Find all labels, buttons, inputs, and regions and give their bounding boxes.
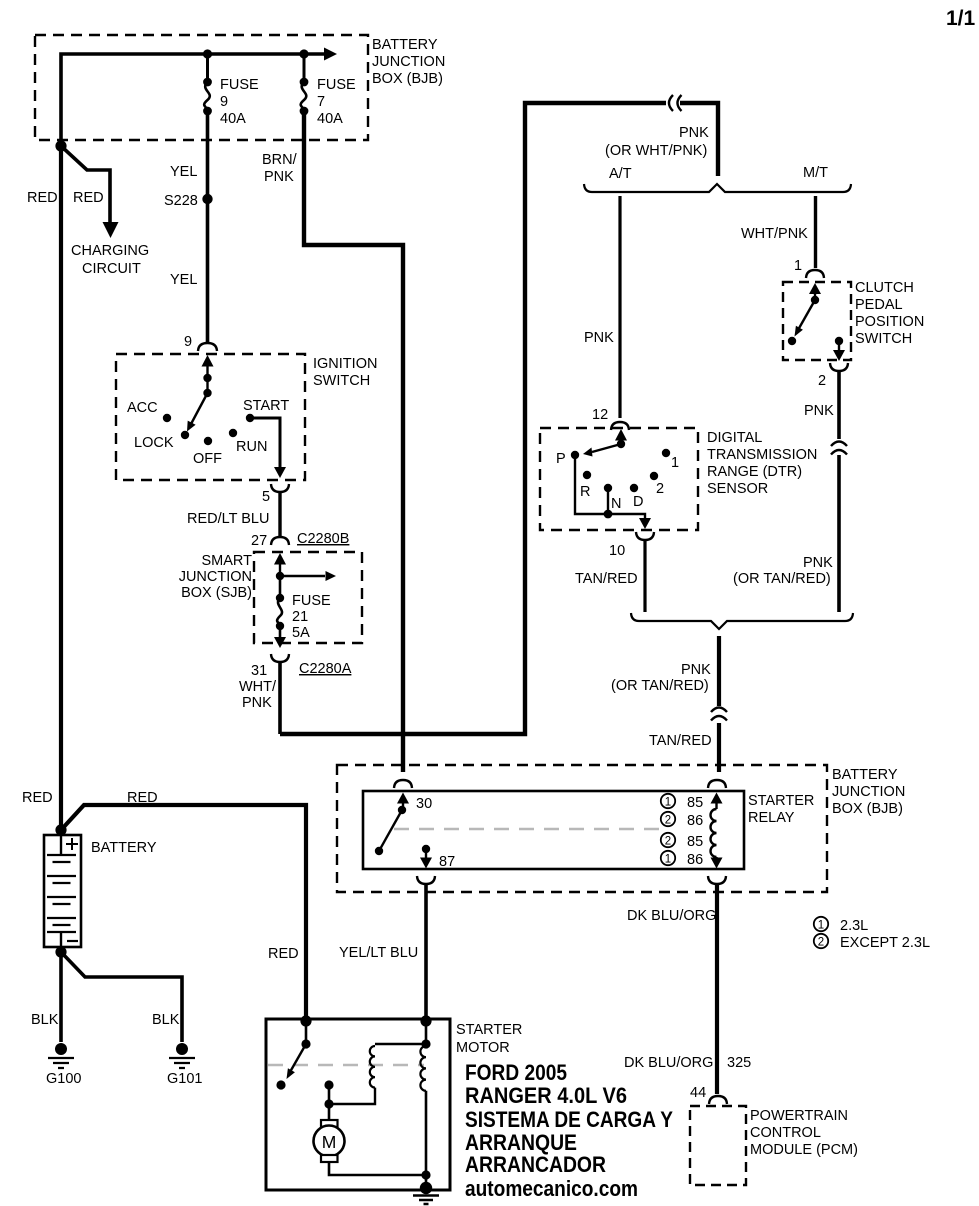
svg-text:86: 86: [687, 852, 703, 868]
svg-text:SWITCH: SWITCH: [313, 373, 370, 389]
svg-text:POWERTRAIN: POWERTRAIN: [750, 1108, 848, 1124]
svg-text:YEL: YEL: [170, 272, 197, 288]
svg-text:PNK: PNK: [242, 695, 272, 711]
svg-text:WHT/PNK: WHT/PNK: [741, 226, 808, 242]
svg-text:40A: 40A: [220, 111, 246, 127]
svg-text:R: R: [580, 484, 590, 500]
svg-text:YEL/LT BLU: YEL/LT BLU: [339, 945, 418, 961]
svg-text:SISTEMA DE CARGA Y: SISTEMA DE CARGA Y: [465, 1107, 673, 1132]
svg-text:RELAY: RELAY: [748, 810, 795, 826]
svg-text:BATTERY: BATTERY: [832, 767, 898, 783]
svg-text:CLUTCH: CLUTCH: [855, 280, 914, 296]
svg-text:PNK: PNK: [803, 555, 833, 571]
svg-text:PEDAL: PEDAL: [855, 297, 903, 313]
svg-text:1: 1: [794, 258, 802, 274]
svg-text:JUNCTION: JUNCTION: [372, 54, 445, 70]
svg-text:40A: 40A: [317, 111, 343, 127]
svg-text:12: 12: [592, 407, 608, 423]
svg-text:TAN/RED: TAN/RED: [575, 571, 638, 587]
svg-text:TRANSMISSION: TRANSMISSION: [707, 447, 817, 463]
svg-text:BATTERY: BATTERY: [372, 37, 438, 53]
svg-text:SENSOR: SENSOR: [707, 481, 768, 497]
svg-text:30: 30: [416, 796, 432, 812]
svg-text:MOTOR: MOTOR: [456, 1040, 510, 1056]
svg-text:2: 2: [818, 373, 826, 389]
svg-text:JUNCTION: JUNCTION: [179, 569, 252, 585]
svg-text:LOCK: LOCK: [134, 435, 174, 451]
svg-text:CONTROL: CONTROL: [750, 1125, 821, 1141]
svg-text:RUN: RUN: [236, 439, 267, 455]
svg-text:STARTER: STARTER: [748, 793, 814, 809]
svg-text:BLK: BLK: [31, 1012, 59, 1028]
svg-text:A/T: A/T: [609, 166, 632, 182]
svg-text:STARTER: STARTER: [456, 1022, 522, 1038]
svg-text:RED: RED: [268, 946, 299, 962]
svg-text:JUNCTION: JUNCTION: [832, 784, 905, 800]
svg-text:M/T: M/T: [803, 165, 828, 181]
svg-text:9: 9: [184, 334, 192, 350]
svg-text:86: 86: [687, 813, 703, 829]
svg-text:1: 1: [818, 920, 824, 932]
svg-text:(OR TAN/RED): (OR TAN/RED): [733, 571, 831, 587]
svg-text:BRN/: BRN/: [262, 152, 298, 168]
svg-text:(OR WHT/PNK): (OR WHT/PNK): [605, 143, 707, 159]
svg-text:PNK: PNK: [264, 169, 294, 185]
svg-text:2: 2: [818, 937, 824, 949]
svg-text:5: 5: [262, 489, 270, 505]
svg-text:CIRCUIT: CIRCUIT: [82, 261, 141, 277]
svg-text:1: 1: [671, 455, 679, 471]
svg-text:FUSE: FUSE: [220, 77, 259, 93]
svg-text:2: 2: [656, 481, 664, 497]
svg-text:27: 27: [251, 533, 267, 549]
svg-text:9: 9: [220, 94, 228, 110]
svg-text:N: N: [611, 496, 621, 512]
svg-text:PNK: PNK: [681, 662, 711, 678]
svg-text:EXCEPT 2.3L: EXCEPT 2.3L: [840, 935, 930, 951]
svg-text:CHARGING: CHARGING: [71, 243, 149, 259]
svg-text:RED/LT BLU: RED/LT BLU: [187, 511, 269, 527]
svg-text:G101: G101: [167, 1071, 202, 1087]
svg-text:DK BLU/ORG: DK BLU/ORG: [627, 908, 716, 924]
svg-text:M: M: [322, 1132, 337, 1152]
svg-text:FUSE: FUSE: [292, 593, 331, 609]
svg-text:SWITCH: SWITCH: [855, 331, 912, 347]
svg-text:BLK: BLK: [152, 1012, 180, 1028]
svg-text:31: 31: [251, 663, 267, 679]
svg-text:BOX (BJB): BOX (BJB): [372, 71, 443, 87]
svg-text:G100: G100: [46, 1071, 81, 1087]
svg-text:RED: RED: [27, 190, 58, 206]
svg-text:IGNITION: IGNITION: [313, 356, 377, 372]
svg-text:2: 2: [665, 815, 671, 827]
svg-text:TAN/RED: TAN/RED: [649, 733, 712, 749]
svg-text:D: D: [633, 494, 643, 510]
svg-text:POSITION: POSITION: [855, 314, 924, 330]
svg-text:SMART: SMART: [202, 553, 253, 569]
svg-text:BOX (SJB): BOX (SJB): [181, 585, 252, 601]
svg-text:PNK: PNK: [804, 403, 834, 419]
svg-text:MODULE (PCM): MODULE (PCM): [750, 1142, 858, 1158]
svg-text:YEL: YEL: [170, 164, 197, 180]
svg-text:RED: RED: [22, 790, 53, 806]
svg-text:1/1: 1/1: [946, 7, 976, 30]
svg-text:325: 325: [727, 1055, 751, 1071]
svg-text:85: 85: [687, 834, 703, 850]
svg-text:S228: S228: [164, 193, 198, 209]
svg-text:10: 10: [609, 543, 625, 559]
svg-text:P: P: [556, 451, 566, 467]
svg-text:C2280B: C2280B: [297, 531, 349, 547]
svg-text:ARRANCADOR: ARRANCADOR: [465, 1152, 606, 1177]
svg-text:C2280A: C2280A: [299, 661, 352, 677]
svg-text:RANGE (DTR): RANGE (DTR): [707, 464, 802, 480]
svg-text:44: 44: [690, 1085, 706, 1101]
svg-text:(OR TAN/RED): (OR TAN/RED): [611, 678, 709, 694]
svg-text:2: 2: [665, 836, 671, 848]
svg-text:ACC: ACC: [127, 400, 158, 416]
svg-text:FUSE: FUSE: [317, 77, 356, 93]
svg-text:START: START: [243, 398, 289, 414]
svg-text:OFF: OFF: [193, 451, 222, 467]
svg-text:5A: 5A: [292, 625, 310, 641]
svg-text:2.3L: 2.3L: [840, 918, 868, 934]
svg-text:RANGER 4.0L V6: RANGER 4.0L V6: [465, 1083, 627, 1108]
svg-text:1: 1: [665, 797, 671, 809]
svg-text:7: 7: [317, 94, 325, 110]
svg-text:automecanico.com: automecanico.com: [465, 1176, 638, 1201]
svg-text:PNK: PNK: [679, 125, 709, 141]
svg-text:21: 21: [292, 609, 308, 625]
svg-text:1: 1: [665, 854, 671, 866]
svg-text:PNK: PNK: [584, 330, 614, 346]
svg-text:85: 85: [687, 795, 703, 811]
svg-text:BATTERY: BATTERY: [91, 840, 157, 856]
svg-text:87: 87: [439, 854, 455, 870]
svg-text:DIGITAL: DIGITAL: [707, 430, 762, 446]
svg-text:FORD 2005: FORD 2005: [465, 1060, 567, 1085]
svg-text:RED: RED: [73, 190, 104, 206]
svg-text:BOX (BJB): BOX (BJB): [832, 801, 903, 817]
svg-text:DK BLU/ORG: DK BLU/ORG: [624, 1055, 713, 1071]
svg-text:WHT/: WHT/: [239, 679, 277, 695]
